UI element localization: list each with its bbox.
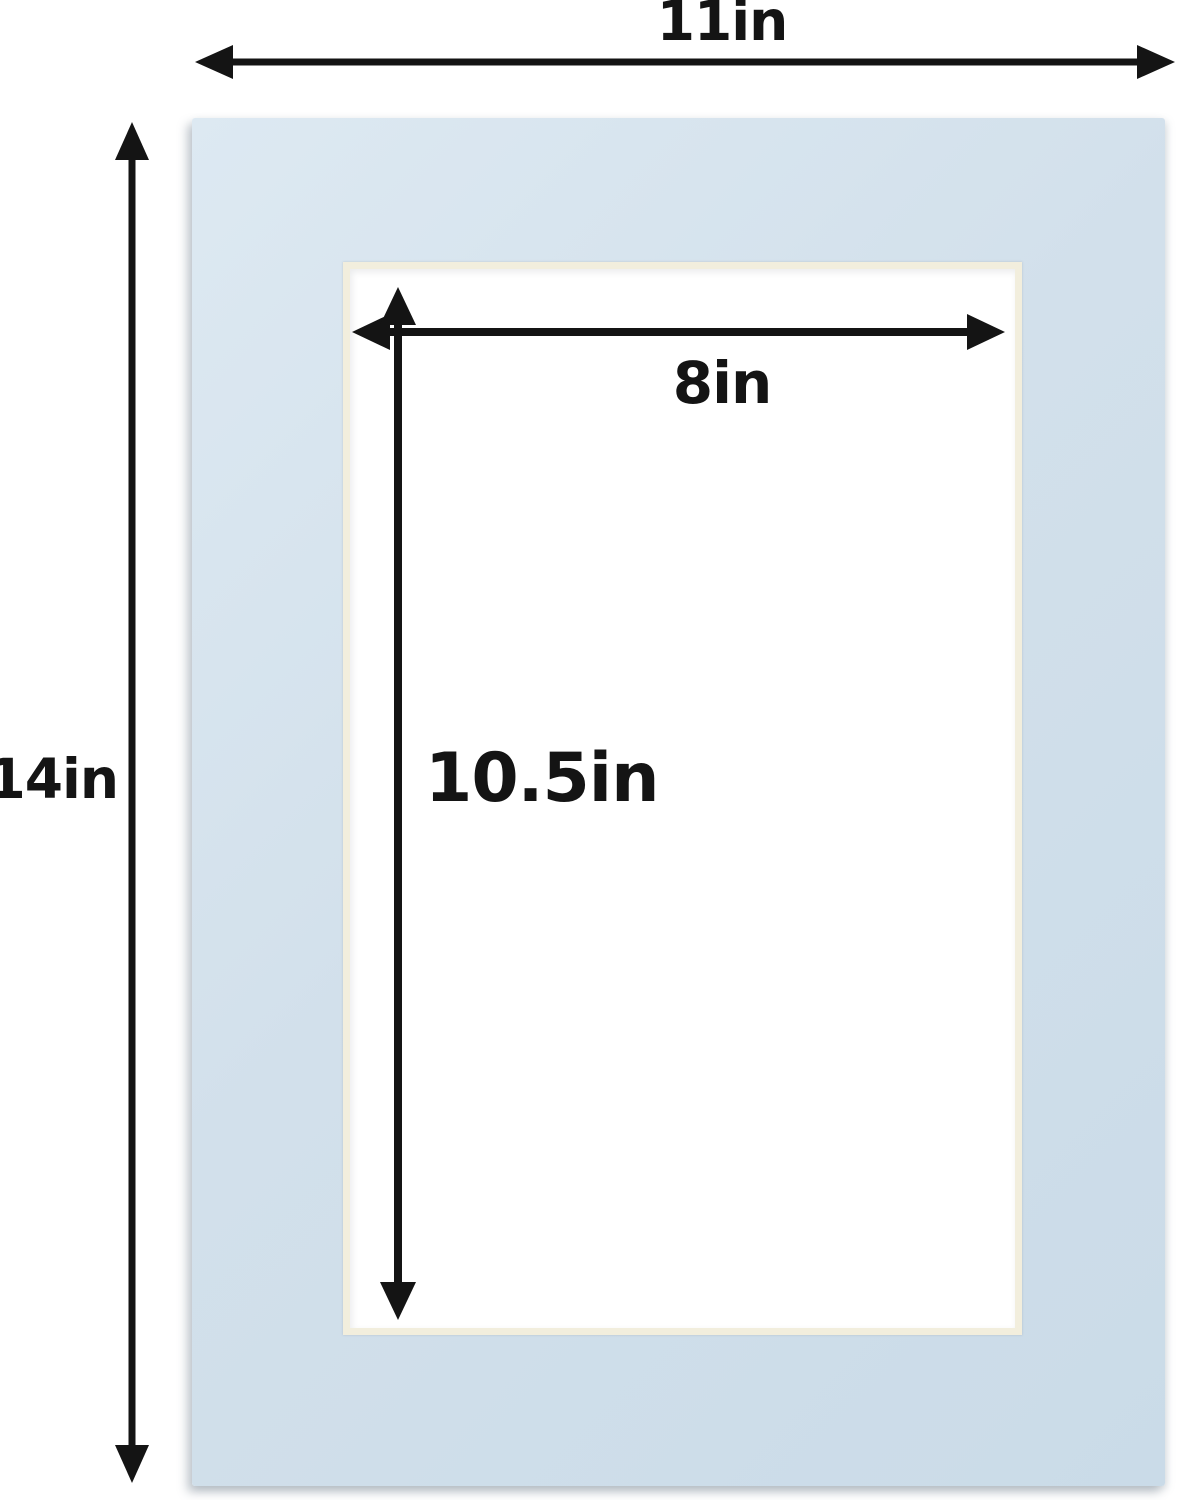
opening-height-label: 10.5in [425,745,659,813]
outer-height-arrowhead-top [115,122,149,160]
outer-width-label: 11in [657,0,788,49]
outer-width-arrowhead-left [195,45,233,79]
outer-height-label: 14in [0,752,118,807]
outer-width-arrowhead-right [1137,45,1175,79]
outer-height-dimension-arrow [115,122,149,1483]
mat-dimension-diagram: 11in 14in 8in 10.5in [0,0,1182,1500]
opening-width-label: 8in [673,354,772,412]
outer-height-arrowhead-bottom [115,1445,149,1483]
